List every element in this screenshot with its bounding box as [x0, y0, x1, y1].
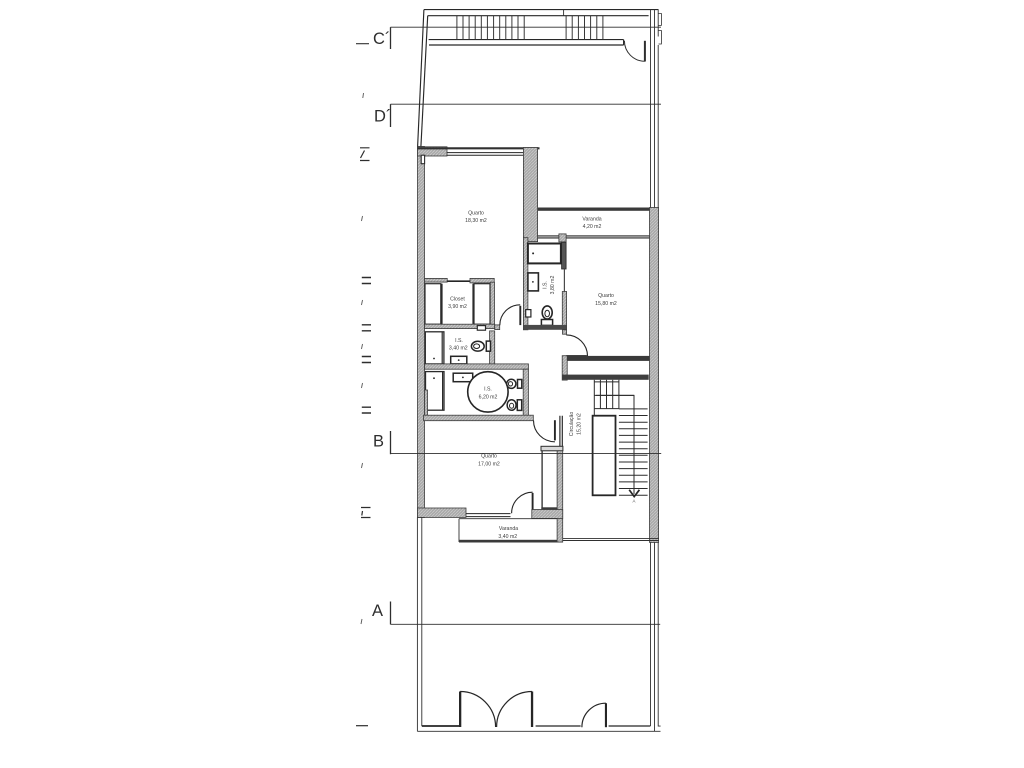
- svg-text:3,40 m2: 3,40 m2: [449, 346, 468, 352]
- svg-text:6,20 m2: 6,20 m2: [479, 395, 498, 401]
- svg-text:D´: D´: [374, 108, 391, 126]
- svg-text:Circulação: Circulação: [569, 412, 575, 437]
- svg-text:Quarto: Quarto: [598, 293, 614, 299]
- svg-text:Closet: Closet: [450, 296, 465, 302]
- svg-text:A: A: [633, 498, 636, 503]
- svg-text:B: B: [373, 433, 384, 451]
- svg-text:3,90 m2: 3,90 m2: [448, 304, 467, 310]
- svg-text:3,40 m2: 3,40 m2: [498, 534, 517, 540]
- svg-text:I.S.: I.S.: [543, 281, 549, 289]
- svg-text:Quarto: Quarto: [481, 453, 497, 459]
- svg-text:Quarto: Quarto: [468, 211, 484, 217]
- svg-text:4,20 m2: 4,20 m2: [583, 224, 602, 230]
- svg-text:3,80 m2: 3,80 m2: [550, 276, 556, 295]
- svg-text:A: A: [372, 602, 383, 620]
- svg-text:I.S.: I.S.: [484, 386, 492, 392]
- svg-text:18,30 m2: 18,30 m2: [465, 218, 487, 224]
- svg-text:Varanda: Varanda: [499, 526, 518, 532]
- svg-text:15,20 m2: 15,20 m2: [577, 413, 583, 435]
- svg-text:Varanda: Varanda: [582, 217, 601, 223]
- svg-text:15,80 m2: 15,80 m2: [595, 301, 617, 307]
- svg-text:C´: C´: [373, 30, 390, 48]
- svg-text:I.S.: I.S.: [455, 338, 463, 344]
- svg-text:17,00 m2: 17,00 m2: [478, 461, 500, 467]
